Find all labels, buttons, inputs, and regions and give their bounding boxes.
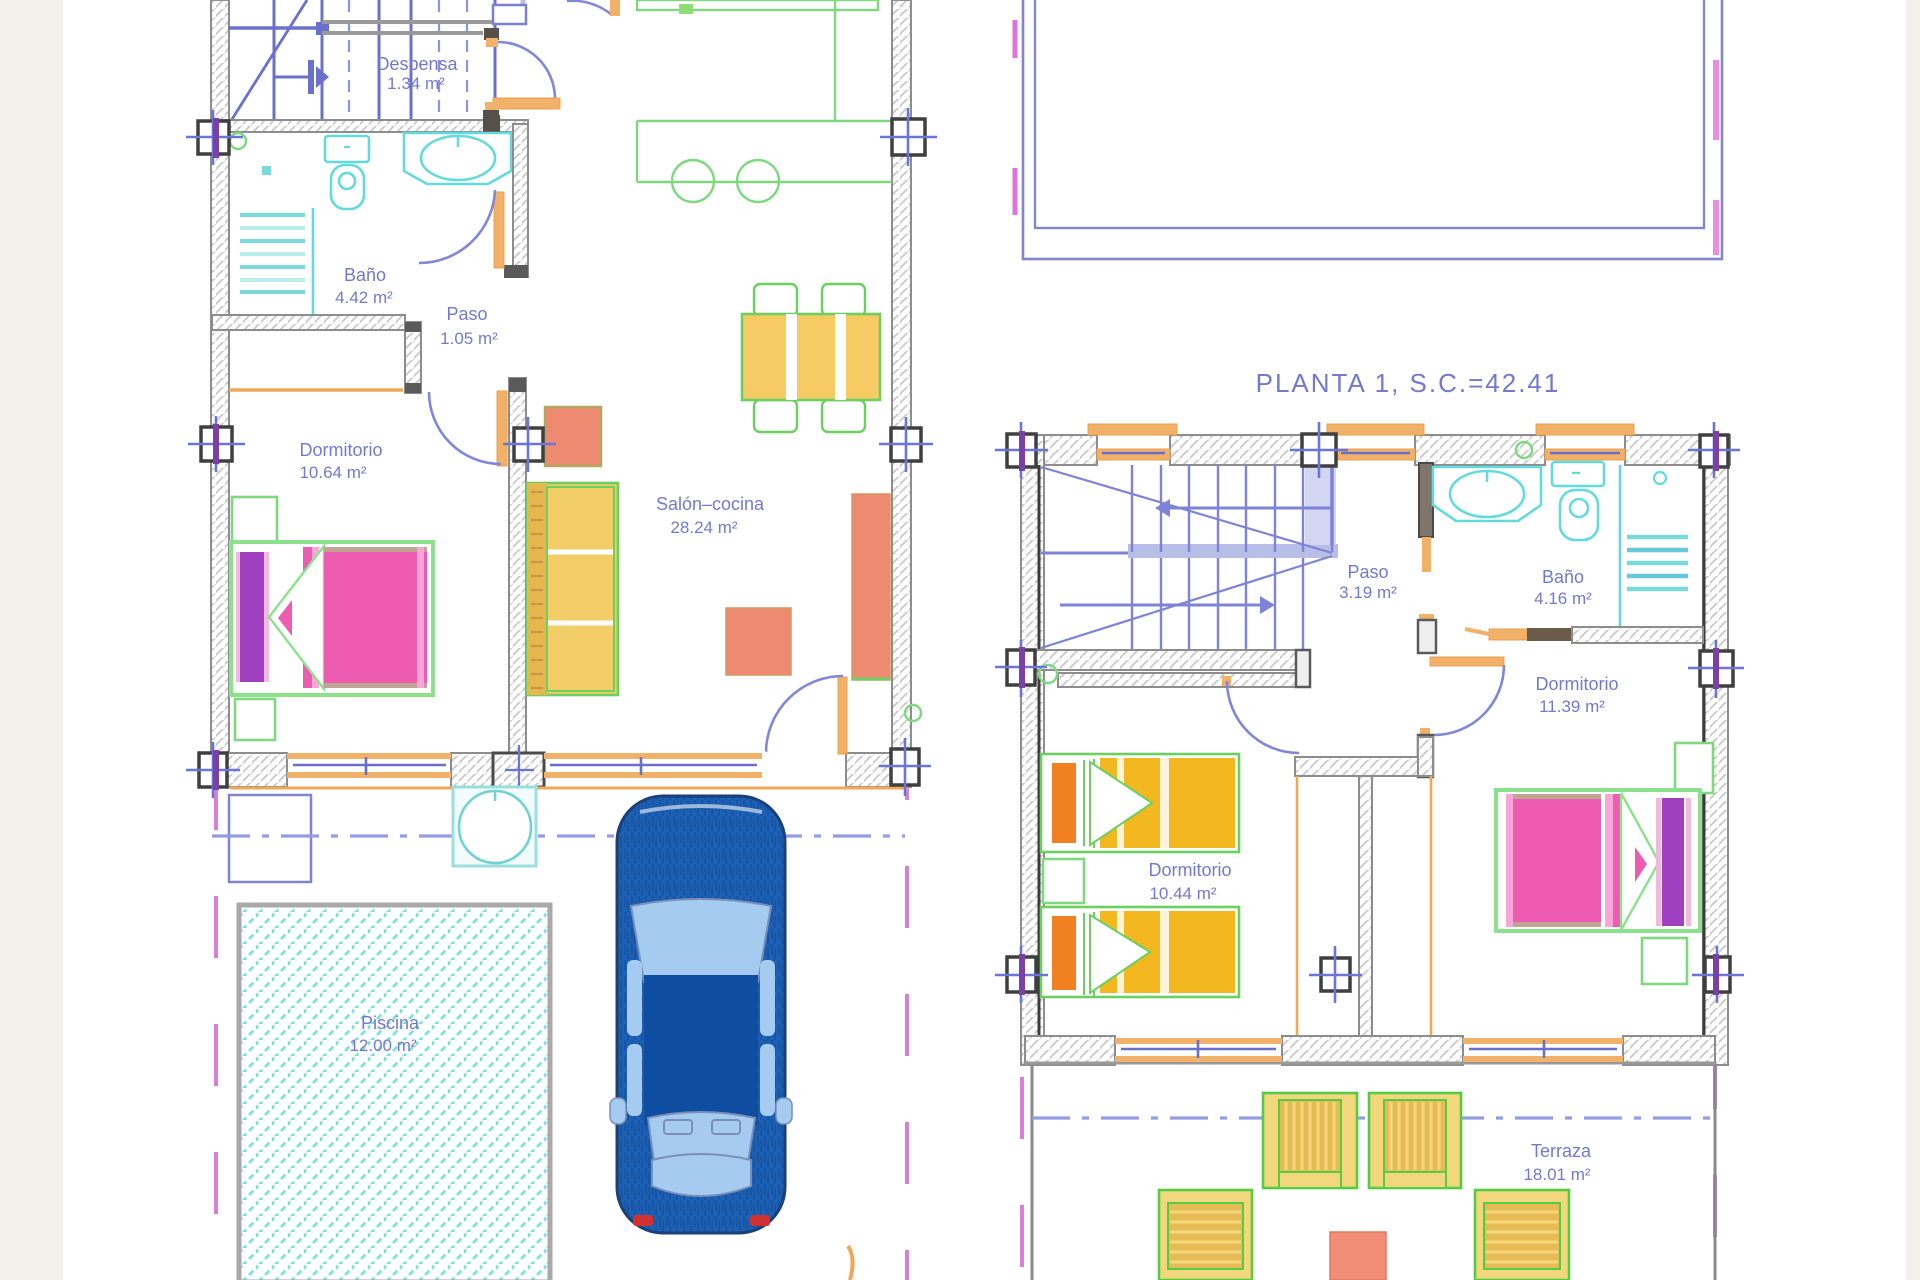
svg-text:Terraza: Terraza (1531, 1141, 1592, 1161)
svg-text:Salón–cocina: Salón–cocina (656, 494, 765, 514)
svg-text:4.16 m²: 4.16 m² (1534, 589, 1592, 608)
svg-text:11.39 m²: 11.39 m² (1539, 697, 1605, 716)
svg-text:Piscina: Piscina (361, 1013, 420, 1033)
svg-text:28.24 m²: 28.24 m² (670, 518, 737, 537)
svg-text:Dormitorio: Dormitorio (1535, 674, 1618, 694)
svg-text:Despensa: Despensa (376, 54, 458, 74)
svg-text:Paso: Paso (1347, 562, 1388, 582)
svg-text:Dormitorio: Dormitorio (299, 440, 382, 460)
svg-text:12.00 m²: 12.00 m² (349, 1036, 416, 1055)
svg-text:10.64 m²: 10.64 m² (299, 463, 366, 482)
svg-text:Baño: Baño (344, 265, 386, 285)
svg-text:18.01 m²: 18.01 m² (1523, 1165, 1590, 1184)
svg-text:Paso: Paso (446, 304, 487, 324)
svg-text:10.44 m²: 10.44 m² (1149, 884, 1216, 903)
svg-text:Baño: Baño (1542, 567, 1584, 587)
svg-text:3.19 m²: 3.19 m² (1339, 583, 1397, 602)
svg-text:1.34 m²: 1.34 m² (387, 74, 445, 93)
svg-text:PLANTA 1, S.C.=42.41: PLANTA 1, S.C.=42.41 (1256, 368, 1561, 398)
svg-text:4.42 m²: 4.42 m² (335, 288, 393, 307)
svg-text:Dormitorio: Dormitorio (1148, 860, 1231, 880)
svg-text:1.05 m²: 1.05 m² (440, 329, 498, 348)
